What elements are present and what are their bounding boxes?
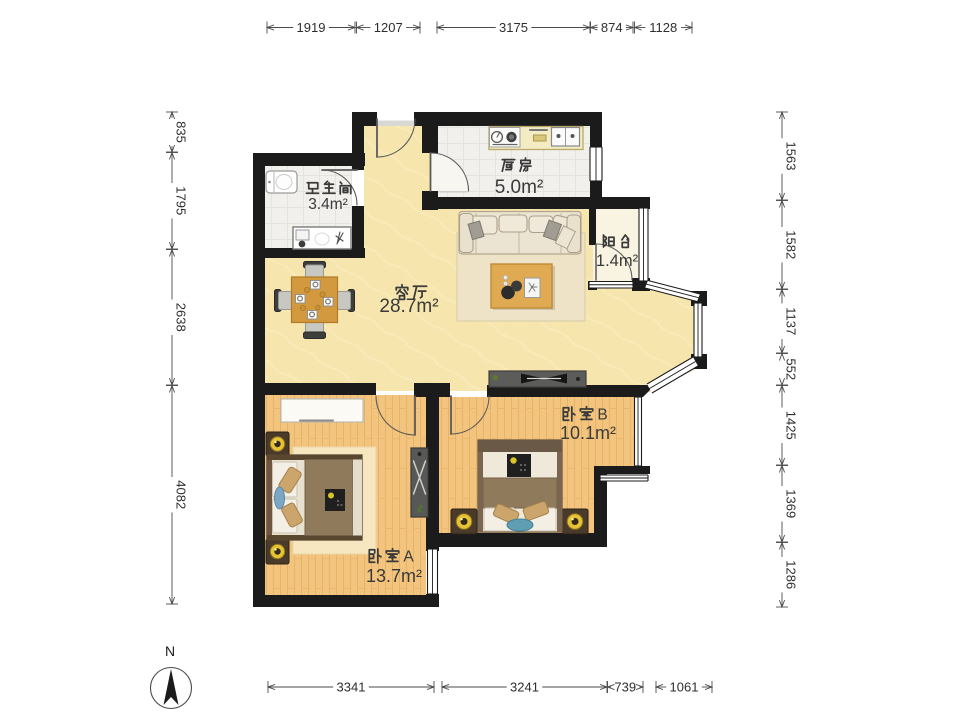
svg-text:1919: 1919: [297, 20, 326, 35]
svg-text:1369: 1369: [784, 489, 799, 518]
svg-text:2638: 2638: [174, 303, 189, 332]
svg-text:1286: 1286: [784, 560, 799, 589]
svg-text:1128: 1128: [649, 20, 677, 35]
svg-text:3.4m²: 3.4m²: [308, 196, 348, 213]
svg-text:3341: 3341: [337, 680, 366, 695]
svg-text:3175: 3175: [499, 20, 528, 35]
svg-text:739: 739: [614, 680, 636, 695]
svg-text:1137: 1137: [784, 307, 799, 335]
svg-text:13.7m²: 13.7m²: [366, 566, 422, 586]
svg-text:1207: 1207: [374, 20, 403, 35]
svg-text:552: 552: [784, 358, 799, 380]
svg-text:4082: 4082: [174, 480, 189, 509]
svg-text:28.7m²: 28.7m²: [379, 296, 438, 317]
svg-text:874: 874: [601, 20, 623, 35]
svg-text:A: A: [403, 549, 414, 566]
svg-text:5.0m²: 5.0m²: [495, 177, 544, 198]
svg-text:1795: 1795: [174, 186, 189, 215]
svg-text:1563: 1563: [784, 142, 799, 171]
svg-text:1425: 1425: [784, 411, 799, 440]
svg-text:835: 835: [174, 121, 189, 143]
svg-text:N: N: [165, 643, 175, 659]
svg-text:10.1m²: 10.1m²: [560, 423, 616, 443]
svg-text:1582: 1582: [784, 230, 799, 259]
svg-text:3241: 3241: [510, 680, 539, 695]
svg-text:B: B: [597, 407, 607, 424]
svg-text:1061: 1061: [670, 680, 699, 695]
svg-text:1.4m²: 1.4m²: [596, 252, 639, 270]
